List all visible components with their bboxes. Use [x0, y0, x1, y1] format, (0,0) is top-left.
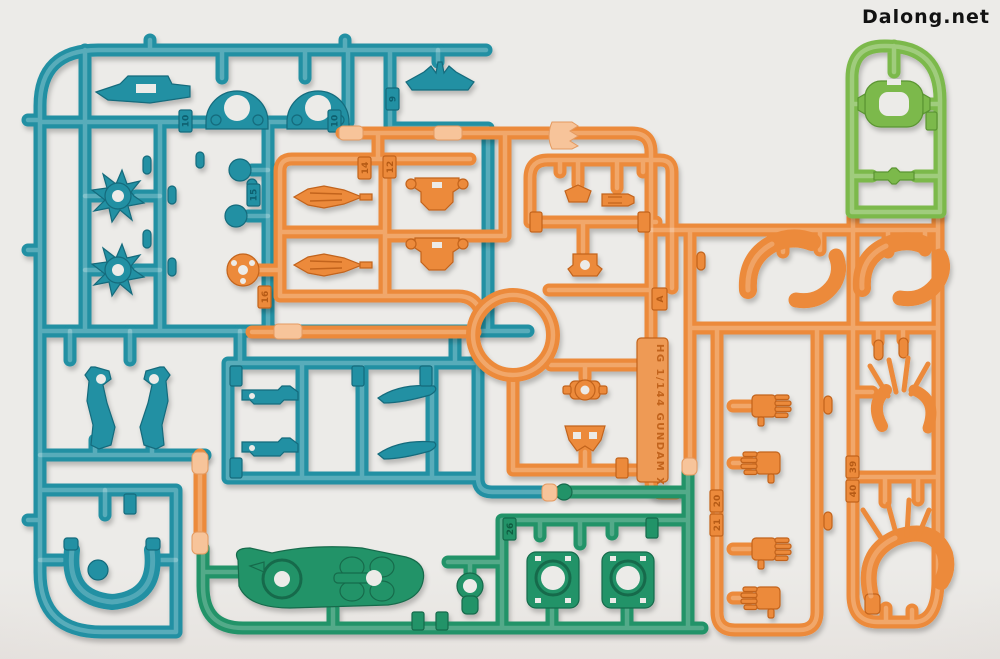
part-geared-joint	[527, 552, 579, 608]
sprue-light-green	[852, 46, 940, 212]
part-ball-joint-sphere	[225, 205, 247, 227]
svg-text:14: 14	[361, 162, 371, 175]
svg-text:12: 12	[386, 161, 396, 174]
part-hand	[741, 587, 780, 618]
part-eye-ring	[858, 79, 930, 127]
svg-text:HG 1/144 GUNDAM X: HG 1/144 GUNDAM X	[654, 344, 665, 486]
orange-peg	[899, 338, 908, 358]
part-hand	[752, 395, 791, 426]
part-hand	[741, 452, 780, 483]
runner-letter-tag: A	[652, 288, 667, 310]
orange-peg	[697, 252, 705, 270]
part-engine-block	[237, 547, 424, 608]
part-hand	[752, 538, 791, 569]
part-hull-plate	[96, 76, 190, 103]
orange-peg	[824, 512, 832, 530]
part-curved-yoke	[64, 538, 160, 602]
part-arch-clamp	[206, 91, 268, 129]
part-torso-block	[406, 178, 468, 210]
part-connector	[874, 168, 914, 184]
part-muzzle	[602, 194, 634, 206]
part-mini-vent	[565, 185, 591, 202]
svg-text:21: 21	[713, 519, 723, 532]
part-torso-block	[406, 238, 468, 270]
part-spiked-thruster-fan	[870, 358, 931, 428]
svg-text:26: 26	[506, 523, 516, 536]
part-antenna-vent	[406, 62, 474, 90]
embossed-kit-label: HG 1/144 GUNDAM X	[637, 338, 668, 486]
part-weapon-half	[242, 386, 298, 404]
gate-clip-fork	[549, 122, 578, 149]
svg-text:20: 20	[713, 495, 723, 508]
svg-text:10: 10	[331, 115, 341, 128]
part-missile-spindle	[294, 186, 372, 208]
sprue-illustration: 9 10 10 15	[0, 0, 1000, 659]
watermark: Dalong.net	[862, 6, 990, 28]
part-ring-joint	[457, 573, 483, 614]
part-geared-joint	[602, 552, 654, 608]
svg-text:16: 16	[261, 291, 271, 304]
svg-text:15: 15	[250, 189, 260, 202]
part-ball-joint-sphere	[229, 159, 251, 181]
svg-text:9: 9	[389, 96, 399, 102]
orange-peg	[824, 396, 832, 414]
runner-end-cap	[556, 484, 572, 500]
part-missile-spindle	[294, 254, 372, 276]
part-shoulder-armor	[748, 238, 943, 300]
svg-text:40: 40	[849, 485, 859, 498]
sprue-dark-green: 26	[203, 472, 702, 630]
svg-text:39: 39	[849, 461, 859, 474]
svg-text:A: A	[656, 295, 666, 302]
part-collar-joint	[568, 254, 602, 276]
photo-model-kit-sprues: 9 10 10 15	[0, 0, 1000, 659]
part-neck-joint	[563, 380, 607, 400]
part-leg-frame	[140, 367, 170, 449]
teal-pegs	[143, 152, 204, 276]
part-holed-disc	[227, 254, 259, 286]
part-weapon-half	[242, 438, 298, 456]
part-number-tag	[926, 112, 937, 130]
orange-peg	[874, 340, 883, 360]
svg-text:10: 10	[182, 115, 192, 128]
